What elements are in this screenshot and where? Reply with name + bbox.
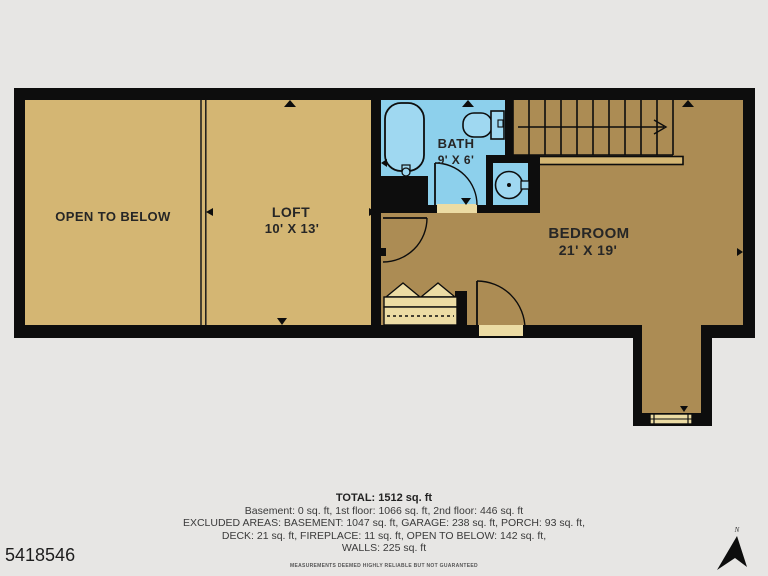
stair-railing bbox=[532, 157, 683, 165]
north-label: N bbox=[734, 526, 740, 534]
listing-id: 5418546 bbox=[5, 545, 75, 566]
bath-dimensions: 9' X 6' bbox=[438, 153, 475, 167]
toilet bbox=[463, 111, 504, 139]
area-summary: TOTAL: 1512 sq. ft Basement: 0 sq. ft, 1… bbox=[0, 492, 768, 572]
open-to-below-label: OPEN TO BELOW bbox=[55, 209, 171, 224]
bedroom-dimensions: 21' X 19' bbox=[559, 242, 618, 258]
loft-label: LOFT bbox=[272, 204, 310, 220]
floor-plan-page: { "listing_id": "5418546", "rooms": { "o… bbox=[0, 0, 768, 576]
bath-label: BATH bbox=[438, 136, 475, 151]
excluded-areas-line2: DECK: 21 sq. ft, FIREPLACE: 11 sq. ft, O… bbox=[0, 530, 768, 543]
exterior-door-threshold bbox=[479, 325, 523, 336]
bedroom-extension-floor bbox=[642, 325, 701, 413]
bathtub bbox=[385, 103, 424, 176]
loft-dimensions: 10' X 13' bbox=[265, 221, 320, 236]
disclaimer: MEASUREMENTS DEEMED HIGHLY RELIABLE BUT … bbox=[0, 560, 768, 573]
north-arrow-icon: N bbox=[710, 520, 760, 574]
walls-area: WALLS: 225 sq. ft bbox=[0, 542, 768, 555]
floor-areas: Basement: 0 sq. ft, 1st floor: 1066 sq. … bbox=[0, 505, 768, 518]
total-area: TOTAL: 1512 sq. ft bbox=[0, 492, 768, 505]
bedroom-label: BEDROOM bbox=[548, 225, 629, 242]
floor-plan-drawing: OPEN TO BELOW LOFT 10' X 13' BATH 9' X 6… bbox=[0, 0, 768, 576]
window bbox=[650, 414, 692, 424]
excluded-areas-line1: EXCLUDED AREAS: BASEMENT: 1047 sq. ft, G… bbox=[0, 517, 768, 530]
